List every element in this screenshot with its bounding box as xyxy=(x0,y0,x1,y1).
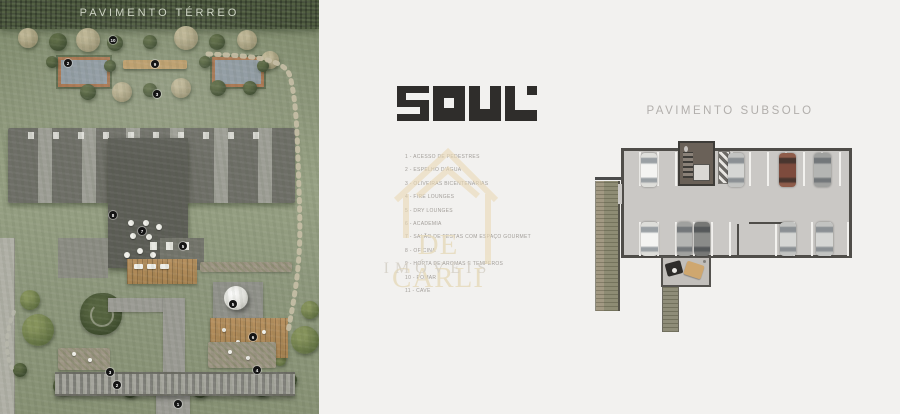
car-icon xyxy=(780,222,796,256)
numbered-marker: 4 xyxy=(253,366,261,374)
numbered-marker: 2 xyxy=(113,381,121,389)
garage-left-opening xyxy=(618,184,622,204)
stall-line xyxy=(729,222,731,256)
logo-letter-l xyxy=(505,86,537,121)
stall-line xyxy=(839,152,841,186)
legend-item: 2 - ESPELHO D'ÁGUA xyxy=(405,164,531,177)
stall-line xyxy=(657,152,659,186)
driveway-ramp xyxy=(662,287,679,332)
stairs-elevator-core xyxy=(678,141,715,186)
numbered-marker: 7 xyxy=(138,227,146,235)
legend-item: 1 - ACESSO DE PEDESTRES xyxy=(405,151,531,164)
legend-item: 4 - FIRE LOUNGES xyxy=(405,191,531,204)
ground-floor-plan: PAVIMENTO TÉRREO xyxy=(0,0,319,414)
legend-item: 5 - DRY LOUNGES xyxy=(405,205,531,218)
stall-line xyxy=(775,222,777,256)
numbered-marker: 5 xyxy=(229,300,237,308)
soul-logo xyxy=(397,86,537,121)
stall-line xyxy=(749,152,751,186)
numbered-marker: 5 xyxy=(179,242,187,250)
stall-line xyxy=(675,152,677,186)
car-icon xyxy=(814,153,831,187)
numbered-marker: 1 xyxy=(174,400,182,408)
stone-path xyxy=(0,0,319,414)
numbered-marker: 3 xyxy=(106,368,114,376)
stall-line xyxy=(803,152,805,186)
car-icon xyxy=(641,222,658,256)
car-icon xyxy=(779,153,796,187)
stall-line xyxy=(711,222,713,256)
watermark-brand-sub: IMÓVEIS xyxy=(372,260,504,278)
stall-line xyxy=(811,222,813,256)
stall-line xyxy=(767,152,769,186)
inner-room-wall-left xyxy=(737,224,739,257)
lamp-dot xyxy=(703,260,706,263)
logo-letter-u xyxy=(469,86,501,121)
legend-item: 3 - OLIVEIRAS BICENTENÁRIAS xyxy=(405,178,531,191)
door-icon xyxy=(684,146,688,152)
numbered-marker: 9 xyxy=(151,60,159,68)
car-icon xyxy=(641,153,657,187)
numbered-marker: 6 xyxy=(249,333,257,341)
numbered-marker: 2 xyxy=(64,59,72,67)
logo-letter-s xyxy=(397,86,429,121)
car-icon xyxy=(694,222,710,256)
car-icon xyxy=(728,153,744,187)
stall-line xyxy=(847,222,849,256)
car-icon xyxy=(677,222,692,256)
numbered-marker: 3 xyxy=(153,90,161,98)
logo-letter-o xyxy=(433,86,465,121)
stairs-icon xyxy=(683,152,693,178)
ground-floor-title: PAVIMENTO TÉRREO xyxy=(0,7,319,19)
chair-icon xyxy=(672,268,677,273)
brochure-page: PAVIMENTO TÉRREO xyxy=(0,0,900,414)
numbered-marker: 10 xyxy=(109,36,117,44)
ramp-wall xyxy=(595,177,622,180)
basement-title: PAVIMENTO SUBSOLO xyxy=(620,105,840,117)
elevator-icon xyxy=(693,164,710,181)
car-icon xyxy=(816,222,833,256)
basement-side-ramp xyxy=(595,181,620,311)
numbered-marker: 8 xyxy=(109,211,117,219)
